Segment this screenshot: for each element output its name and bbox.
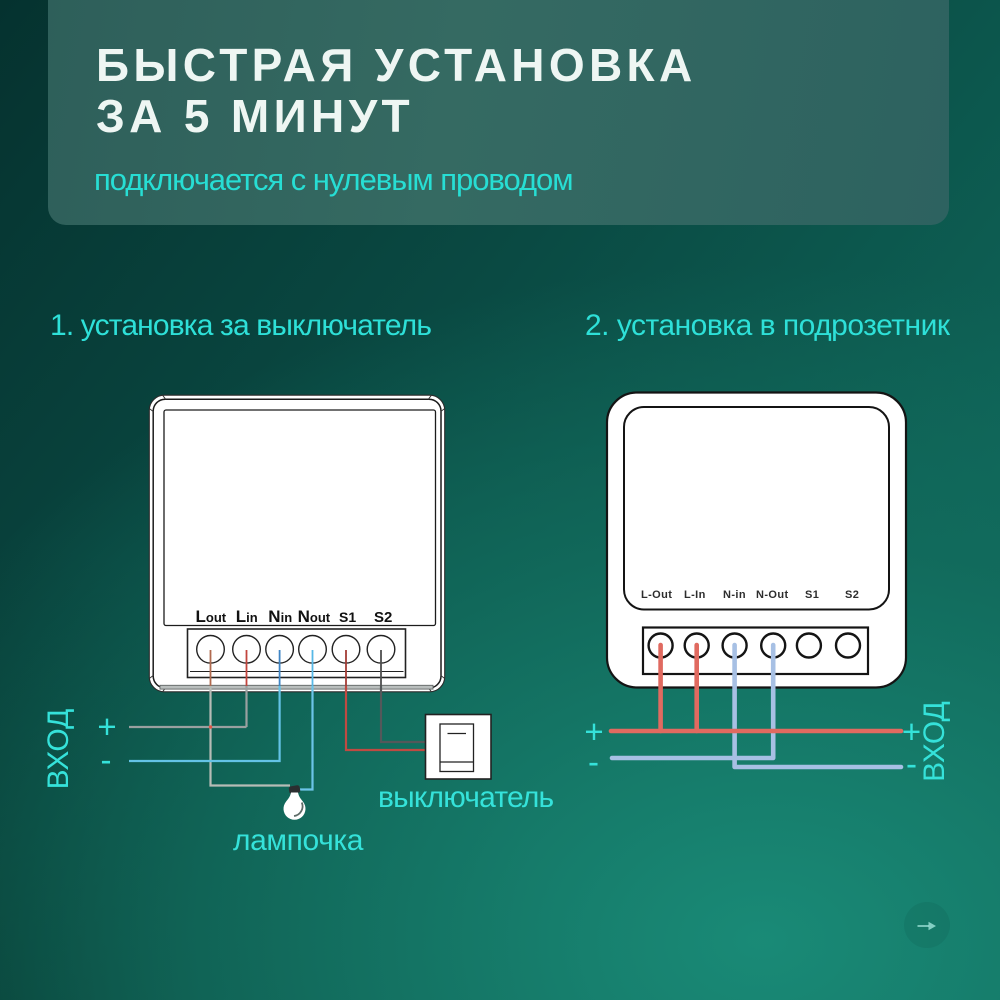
- svg-text:ВХОД: ВХОД: [42, 709, 75, 790]
- svg-text:Nout: Nout: [298, 607, 331, 626]
- svg-text:Lout: Lout: [196, 607, 227, 626]
- svg-text:L-In: L-In: [684, 589, 706, 601]
- svg-text:-: -: [906, 745, 917, 782]
- svg-text:выключатель: выключатель: [378, 781, 554, 814]
- svg-text:Nin: Nin: [268, 607, 292, 626]
- svg-text:L-Out: L-Out: [641, 589, 672, 601]
- svg-text:N-in: N-in: [723, 589, 746, 601]
- svg-text:S1: S1: [339, 609, 356, 625]
- svg-text:Lin: Lin: [236, 607, 258, 626]
- svg-text:S2: S2: [845, 589, 859, 601]
- svg-text:S1: S1: [805, 589, 819, 601]
- svg-text:N-Out: N-Out: [756, 589, 789, 601]
- svg-text:лампочка: лампочка: [233, 824, 364, 857]
- svg-text:-: -: [101, 741, 112, 778]
- svg-text:-: -: [588, 743, 599, 780]
- svg-text:+: +: [97, 708, 116, 745]
- svg-text:S2: S2: [374, 609, 392, 626]
- svg-text:ВХОД: ВХОД: [918, 701, 951, 782]
